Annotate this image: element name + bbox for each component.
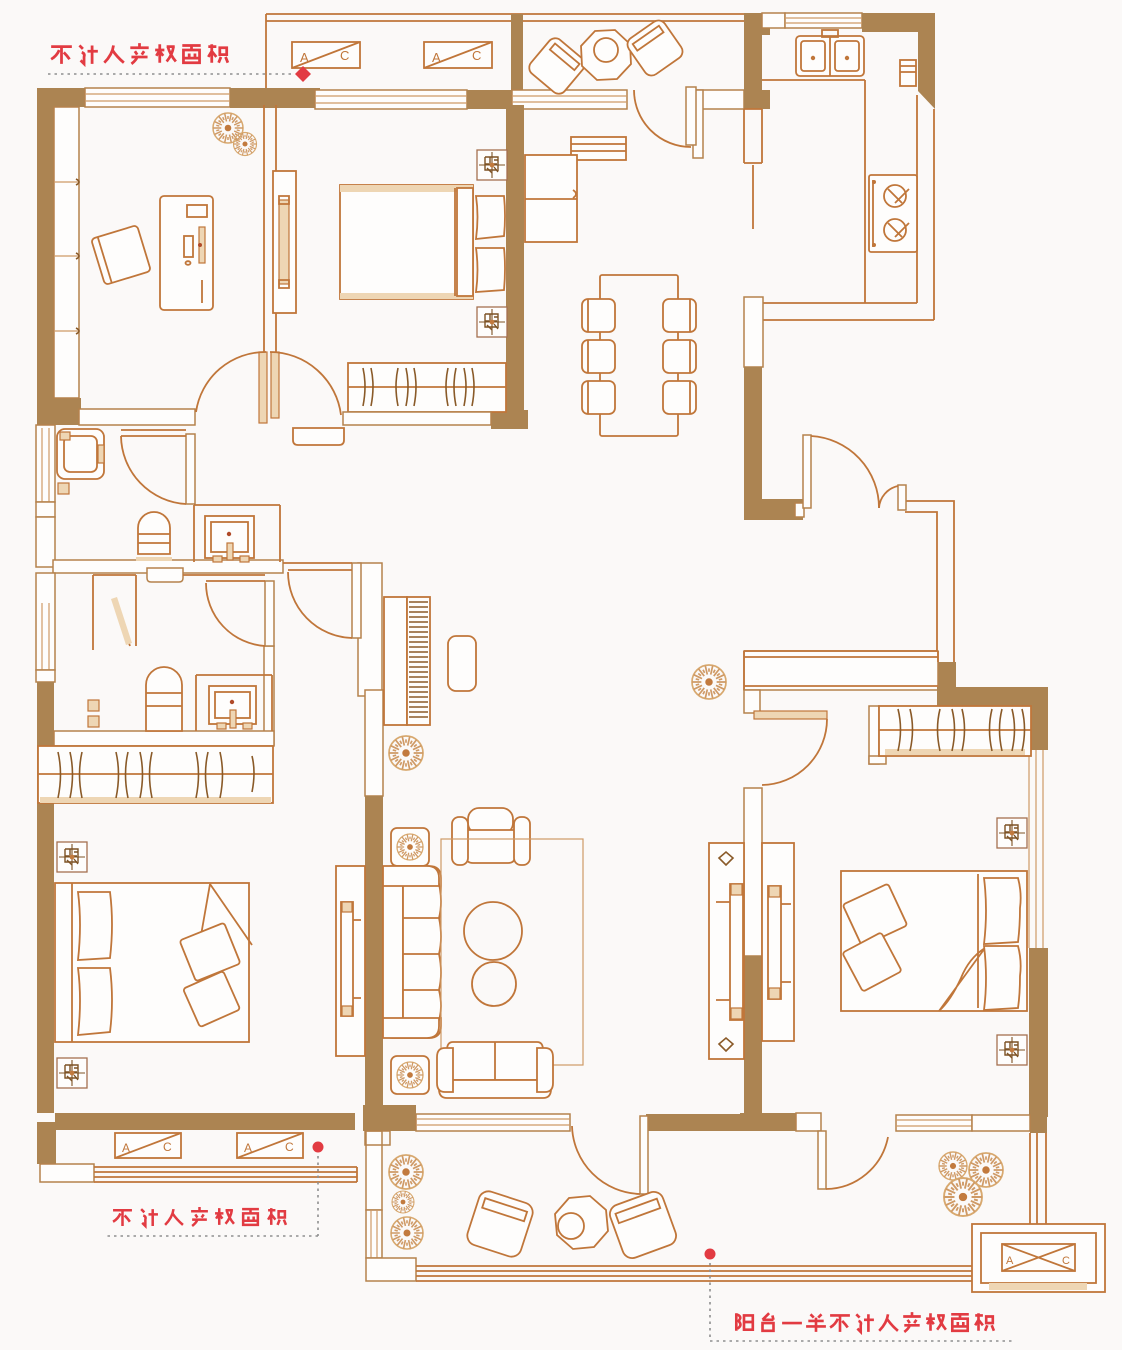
svg-text:C: C: [163, 1140, 172, 1154]
svg-text:C: C: [1062, 1255, 1070, 1267]
svg-text:C: C: [285, 1140, 294, 1154]
svg-text:A: A: [244, 1141, 252, 1155]
svg-text:A: A: [122, 1141, 130, 1155]
svg-text:C: C: [472, 48, 481, 63]
svg-text:C: C: [340, 48, 349, 63]
svg-text:A: A: [432, 50, 441, 65]
svg-text:A: A: [300, 50, 309, 65]
svg-text:A: A: [1006, 1255, 1014, 1267]
